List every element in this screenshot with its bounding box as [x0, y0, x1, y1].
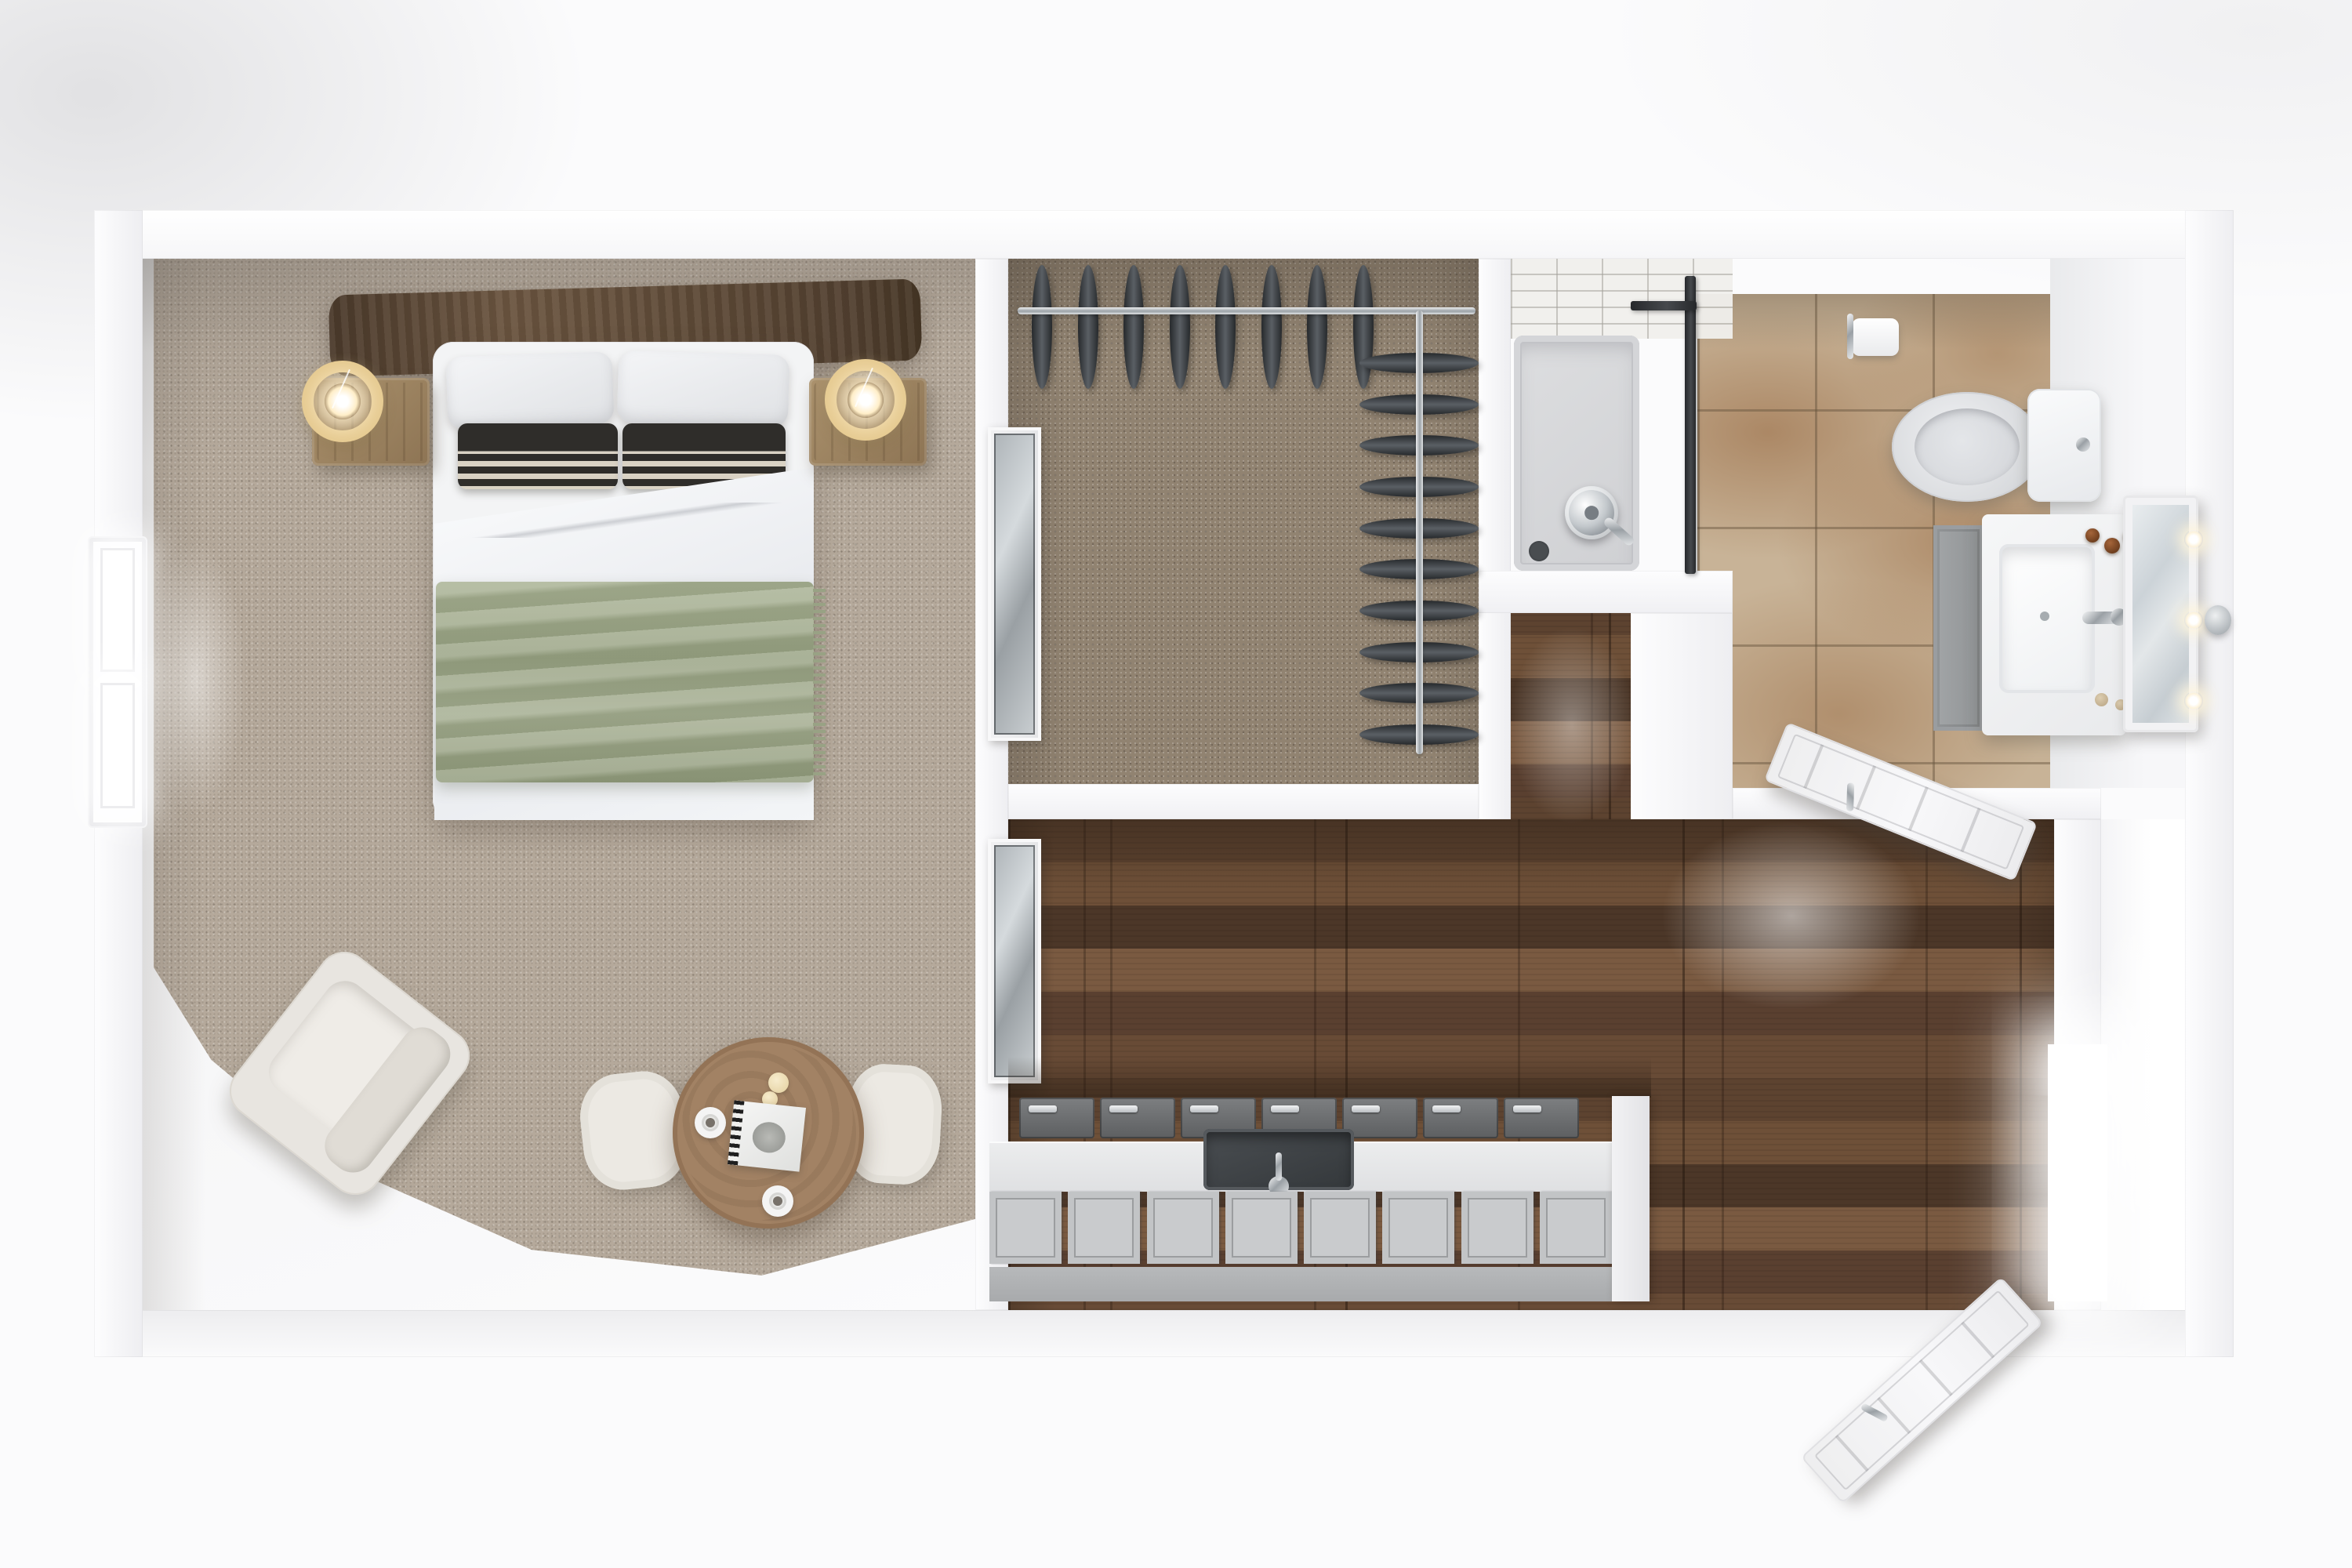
kitchen-upper-panel: [1100, 1098, 1175, 1138]
kitchen-cabinet-door: [989, 1192, 1062, 1264]
kitchen-cabinet-door: [1304, 1192, 1376, 1264]
closet-sliding-door: [988, 427, 1041, 741]
amber-bottle-1: [2085, 528, 2100, 543]
pillow-white-left: [445, 351, 614, 429]
shower-drain: [1529, 541, 1549, 561]
hanging-garment: [1170, 265, 1190, 389]
mirror-bulbs: [2184, 530, 2203, 710]
kitchen-cabinet-door: [1068, 1192, 1140, 1264]
hanging-garment: [1261, 265, 1282, 389]
hanging-garment: [1078, 265, 1098, 389]
kitchen-plinth: [989, 1267, 1612, 1301]
door-handle: [1860, 1403, 1889, 1422]
bathroom-door-light-spill: [1662, 822, 1921, 1010]
wall-bath-stub: [1631, 613, 1733, 819]
kitchen-upper-panel: [1504, 1098, 1579, 1138]
mirror-bulb: [2184, 530, 2203, 549]
kitchen-cabinet-door: [1540, 1192, 1612, 1264]
wall-right: [2185, 210, 2234, 1357]
window-pane-top: [100, 548, 135, 672]
wall-sconce: [2205, 605, 2231, 635]
door-handle: [1846, 782, 1854, 811]
closet-rail-back: [1018, 307, 1475, 314]
table-lamp-right: [825, 359, 906, 441]
floor-plan-render: [0, 0, 2352, 1568]
shower-head: [1565, 486, 1618, 539]
hanging-garment: [1123, 265, 1144, 389]
hanging-garment: [1032, 265, 1052, 389]
toilet-paper-holder: [1852, 318, 1899, 356]
vanity-cabinet: [1933, 525, 1984, 731]
kitchen-cabinet-door: [1147, 1192, 1219, 1264]
kitchen-cabinet-door: [1225, 1192, 1298, 1264]
magazine: [728, 1100, 806, 1171]
mirror-bulb: [2184, 691, 2203, 710]
window-light-spill: [144, 541, 246, 815]
coffee-cup-top: [695, 1107, 726, 1138]
kitchen-upper-panel: [1019, 1098, 1094, 1138]
basin-drain: [2040, 612, 2049, 621]
amber-bottle-2: [2104, 538, 2120, 554]
mirror-bulb: [2184, 611, 2203, 630]
kitchen-cabinet-door: [1382, 1192, 1454, 1264]
wall-bottom: [94, 1310, 2234, 1357]
closet-rail-side: [1416, 310, 1423, 754]
hanging-garment: [1215, 265, 1236, 389]
bed-throw-blanket: [436, 582, 814, 782]
kitchen-door-row: [989, 1192, 1612, 1267]
wall-shower-bottom: [1479, 571, 1733, 613]
pillow-white-right: [617, 350, 789, 427]
toilet-paper-rod: [1847, 314, 1853, 359]
kitchen-faucet-spout: [1276, 1152, 1282, 1181]
table-lamp-left: [302, 361, 383, 442]
wall-top: [94, 210, 2234, 259]
shower-subway-tile: [1511, 259, 1733, 339]
kitchen-cabinet-door: [1461, 1192, 1534, 1264]
hanging-garment: [1307, 265, 1327, 389]
pillow-striped-left: [458, 423, 618, 489]
coffee-cup-bottom: [762, 1185, 793, 1217]
bedroom-window: [89, 538, 146, 826]
wall-closet-right: [1479, 259, 1511, 819]
shower-glass-screen: [1685, 276, 1696, 574]
shower-glass-top-bar: [1631, 301, 1697, 310]
kitchen-end-panel: [1612, 1096, 1650, 1301]
closet-garments-back: [1032, 265, 1374, 392]
toilet-bowl: [1892, 392, 2042, 502]
window-pane-bottom: [100, 683, 135, 808]
entry-door-opening: [2048, 1044, 2107, 1301]
kitchen-upper-panel: [1423, 1098, 1498, 1138]
soap-dish-1: [2095, 693, 2108, 706]
doorway-light-spill: [1509, 627, 1635, 823]
candle-large: [768, 1073, 789, 1093]
wall-closet-bottom: [1008, 784, 1479, 819]
hall-sliding-door: [988, 839, 1041, 1083]
toilet-flush-button: [2076, 437, 2090, 452]
